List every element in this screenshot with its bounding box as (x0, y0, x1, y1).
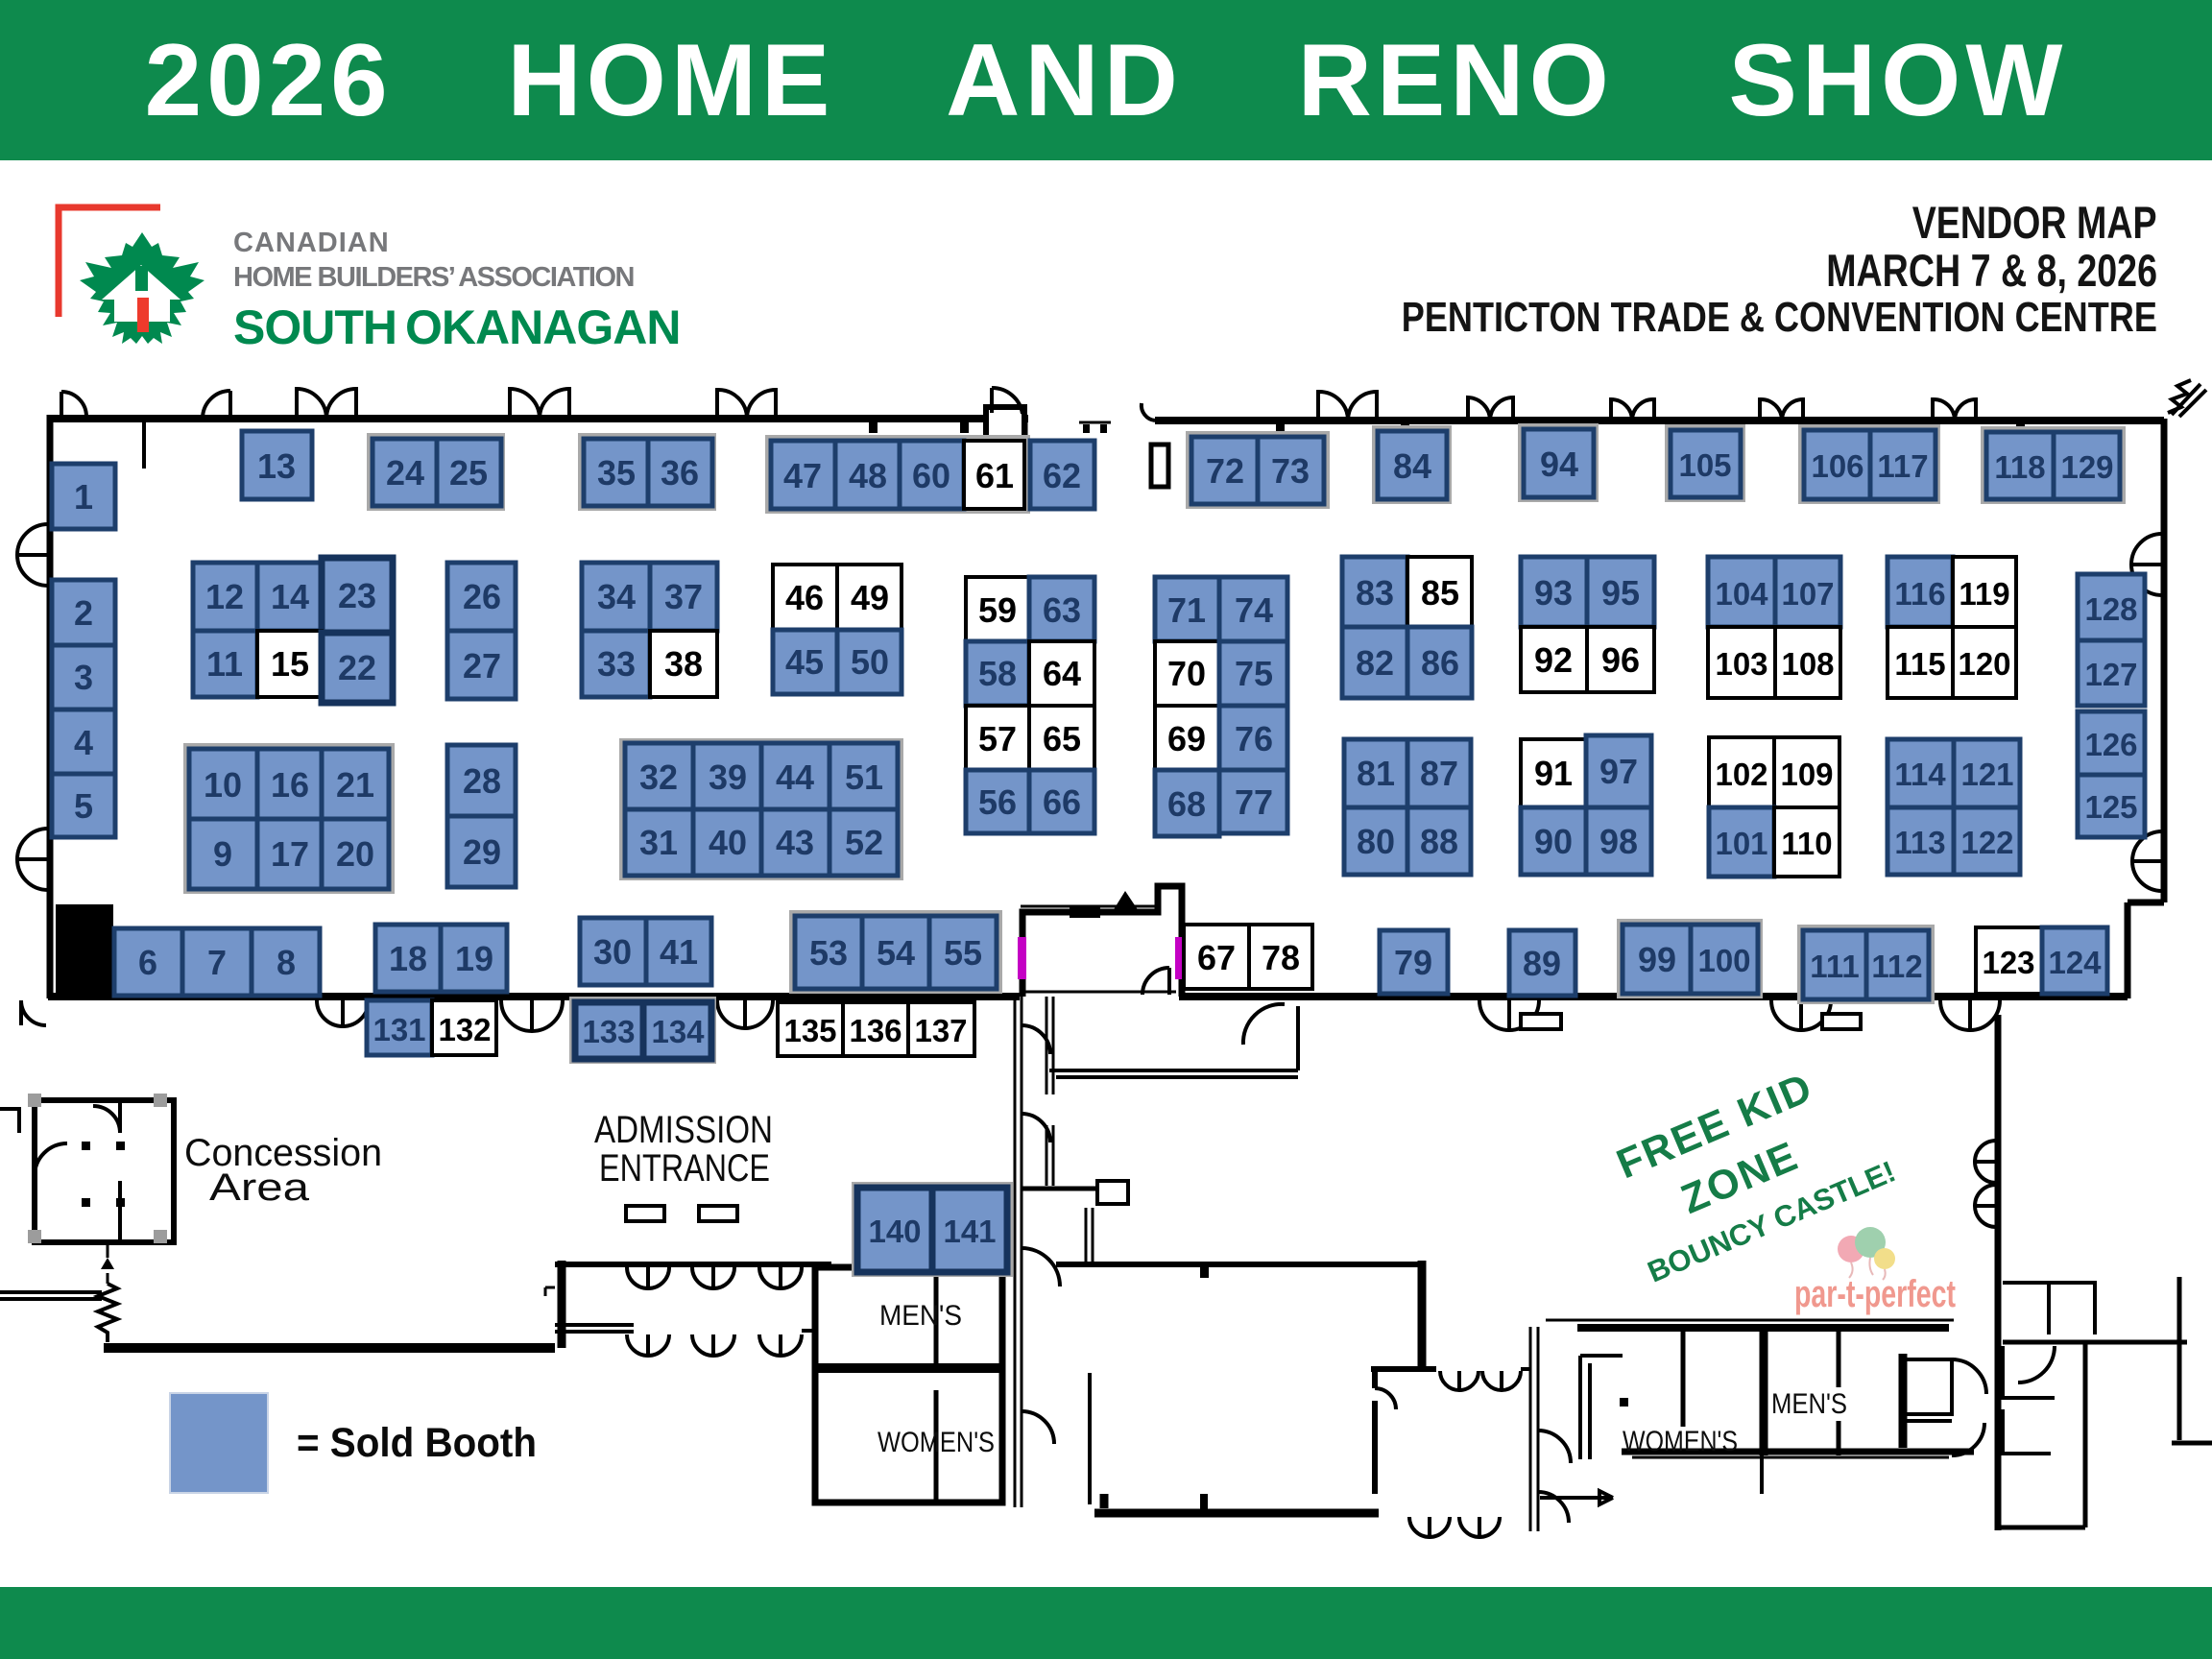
svg-text:84: 84 (1393, 446, 1431, 486)
svg-text:104: 104 (1715, 576, 1768, 612)
svg-text:102: 102 (1715, 757, 1767, 792)
svg-text:95: 95 (1601, 573, 1640, 613)
svg-text:80: 80 (1357, 822, 1395, 861)
svg-text:4: 4 (74, 723, 93, 762)
svg-text:20: 20 (336, 834, 374, 874)
svg-text:par-t-perfect: par-t-perfect (1794, 1273, 1956, 1315)
svg-text:105: 105 (1678, 447, 1731, 483)
svg-text:40: 40 (709, 823, 747, 862)
svg-text:= Sold Booth: = Sold Booth (297, 1420, 537, 1466)
svg-text:131: 131 (373, 1012, 425, 1047)
svg-text:82: 82 (1356, 643, 1394, 683)
svg-text:63: 63 (1043, 590, 1081, 630)
svg-text:52: 52 (845, 823, 883, 862)
svg-text:50: 50 (851, 642, 889, 682)
svg-text:90: 90 (1534, 822, 1573, 861)
svg-text:39: 39 (709, 757, 747, 797)
svg-text:12: 12 (205, 577, 244, 616)
svg-text:126: 126 (2084, 727, 2137, 762)
svg-text:93: 93 (1534, 573, 1573, 613)
svg-text:141: 141 (943, 1214, 996, 1249)
svg-text:94: 94 (1540, 445, 1578, 484)
svg-text:79: 79 (1394, 943, 1432, 982)
svg-text:36: 36 (661, 453, 699, 493)
svg-text:69: 69 (1167, 719, 1206, 758)
svg-text:33: 33 (597, 644, 636, 684)
svg-text:25: 25 (449, 453, 488, 493)
svg-text:65: 65 (1043, 719, 1081, 758)
svg-text:133: 133 (582, 1014, 635, 1049)
svg-text:68: 68 (1167, 784, 1206, 824)
svg-text:86: 86 (1421, 643, 1459, 683)
svg-text:41: 41 (660, 932, 698, 972)
svg-text:46: 46 (785, 578, 824, 617)
svg-text:Area: Area (209, 1166, 310, 1209)
svg-text:70: 70 (1167, 654, 1206, 693)
svg-text:59: 59 (978, 590, 1017, 630)
svg-text:15: 15 (271, 644, 309, 684)
svg-text:75: 75 (1235, 654, 1273, 693)
svg-text:11: 11 (206, 644, 243, 684)
svg-text:107: 107 (1781, 576, 1834, 612)
svg-text:103: 103 (1715, 646, 1767, 682)
svg-text:43: 43 (776, 823, 814, 862)
svg-text:89: 89 (1523, 944, 1561, 983)
svg-text:34: 34 (597, 577, 636, 616)
svg-text:140: 140 (868, 1214, 921, 1249)
svg-text:111: 111 (1810, 949, 1859, 984)
svg-text:19: 19 (455, 939, 493, 978)
svg-text:3: 3 (74, 658, 93, 697)
svg-text:27: 27 (463, 646, 501, 685)
svg-text:101: 101 (1715, 826, 1767, 861)
svg-text:85: 85 (1421, 573, 1459, 613)
svg-text:120: 120 (1958, 646, 2010, 682)
svg-text:26: 26 (463, 577, 501, 616)
svg-text:108: 108 (1781, 646, 1834, 682)
svg-text:9: 9 (213, 834, 232, 874)
svg-text:83: 83 (1356, 573, 1394, 613)
svg-text:97: 97 (1599, 752, 1638, 791)
svg-text:73: 73 (1271, 451, 1310, 491)
svg-text:88: 88 (1420, 822, 1458, 861)
svg-text:8: 8 (276, 943, 296, 982)
svg-text:30: 30 (593, 932, 632, 972)
svg-text:112: 112 (1871, 949, 1922, 984)
svg-text:54: 54 (877, 933, 915, 973)
svg-text:67: 67 (1197, 938, 1236, 977)
svg-text:45: 45 (785, 642, 824, 682)
svg-text:127: 127 (2084, 657, 2137, 692)
svg-text:72: 72 (1206, 451, 1244, 491)
svg-text:18: 18 (389, 939, 427, 978)
svg-text:7: 7 (207, 943, 227, 982)
svg-text:119: 119 (1959, 576, 2009, 612)
svg-text:ADMISSION: ADMISSION (594, 1109, 773, 1151)
svg-text:137: 137 (914, 1013, 967, 1048)
svg-text:1: 1 (74, 477, 93, 517)
svg-text:51: 51 (845, 757, 883, 797)
svg-text:124: 124 (2048, 945, 2102, 980)
svg-text:71: 71 (1167, 590, 1206, 630)
svg-text:32: 32 (639, 757, 678, 797)
svg-text:123: 123 (1982, 945, 2034, 980)
svg-text:58: 58 (978, 654, 1017, 693)
svg-text:114: 114 (1894, 757, 1946, 792)
svg-text:13: 13 (257, 446, 296, 486)
svg-text:99: 99 (1638, 940, 1676, 979)
svg-text:128: 128 (2084, 591, 2137, 627)
svg-text:134: 134 (651, 1014, 705, 1049)
svg-text:113: 113 (1894, 825, 1945, 860)
svg-text:28: 28 (463, 761, 501, 801)
svg-text:77: 77 (1235, 782, 1273, 822)
svg-text:37: 37 (664, 577, 703, 616)
svg-text:74: 74 (1235, 590, 1273, 630)
svg-text:117: 117 (1877, 448, 1928, 484)
svg-text:ENTRANCE: ENTRANCE (599, 1147, 770, 1190)
svg-text:2: 2 (74, 593, 93, 633)
svg-text:121: 121 (1960, 757, 2013, 792)
svg-text:100: 100 (1697, 943, 1750, 978)
svg-text:81: 81 (1357, 754, 1395, 793)
svg-text:129: 129 (2060, 449, 2113, 485)
svg-text:MEN'S: MEN'S (1771, 1388, 1847, 1420)
svg-text:6: 6 (138, 943, 157, 982)
svg-text:21: 21 (336, 765, 374, 805)
svg-text:96: 96 (1601, 640, 1640, 680)
svg-text:WOMEN'S: WOMEN'S (1623, 1426, 1738, 1457)
svg-text:110: 110 (1781, 826, 1832, 861)
svg-text:48: 48 (849, 456, 887, 495)
svg-text:61: 61 (975, 456, 1014, 495)
svg-text:38: 38 (664, 644, 703, 684)
svg-text:118: 118 (1994, 449, 2045, 485)
svg-text:91: 91 (1534, 754, 1573, 793)
svg-text:64: 64 (1043, 654, 1081, 693)
svg-text:115: 115 (1894, 646, 1945, 682)
svg-text:109: 109 (1780, 757, 1833, 792)
svg-text:62: 62 (1043, 456, 1081, 495)
svg-text:106: 106 (1811, 448, 1863, 484)
svg-text:24: 24 (386, 453, 424, 493)
svg-text:23: 23 (338, 576, 376, 615)
svg-text:116: 116 (1894, 576, 1945, 612)
svg-text:92: 92 (1534, 640, 1573, 680)
svg-text:44: 44 (776, 757, 814, 797)
svg-text:49: 49 (851, 578, 889, 617)
svg-text:WOMEN'S: WOMEN'S (878, 1427, 995, 1458)
svg-text:MEN'S: MEN'S (879, 1300, 962, 1332)
svg-text:14: 14 (271, 577, 309, 616)
svg-text:56: 56 (978, 782, 1017, 822)
svg-text:47: 47 (783, 456, 822, 495)
svg-text:122: 122 (1960, 825, 2013, 860)
svg-text:35: 35 (597, 453, 636, 493)
svg-text:53: 53 (809, 933, 848, 973)
svg-text:78: 78 (1262, 938, 1300, 977)
svg-text:132: 132 (438, 1012, 491, 1047)
svg-text:76: 76 (1235, 719, 1273, 758)
svg-text:16: 16 (271, 765, 309, 805)
svg-text:10: 10 (204, 765, 242, 805)
svg-text:17: 17 (271, 834, 309, 874)
svg-text:135: 135 (783, 1013, 836, 1048)
svg-text:55: 55 (944, 933, 982, 973)
svg-text:87: 87 (1420, 754, 1458, 793)
svg-text:31: 31 (639, 823, 678, 862)
svg-text:98: 98 (1599, 822, 1638, 861)
svg-text:29: 29 (463, 832, 501, 872)
svg-text:66: 66 (1043, 782, 1081, 822)
svg-text:125: 125 (2084, 789, 2137, 825)
svg-text:22: 22 (338, 648, 376, 687)
svg-text:136: 136 (849, 1013, 902, 1048)
svg-text:60: 60 (912, 456, 950, 495)
svg-text:57: 57 (978, 719, 1017, 758)
svg-text:5: 5 (74, 786, 93, 826)
